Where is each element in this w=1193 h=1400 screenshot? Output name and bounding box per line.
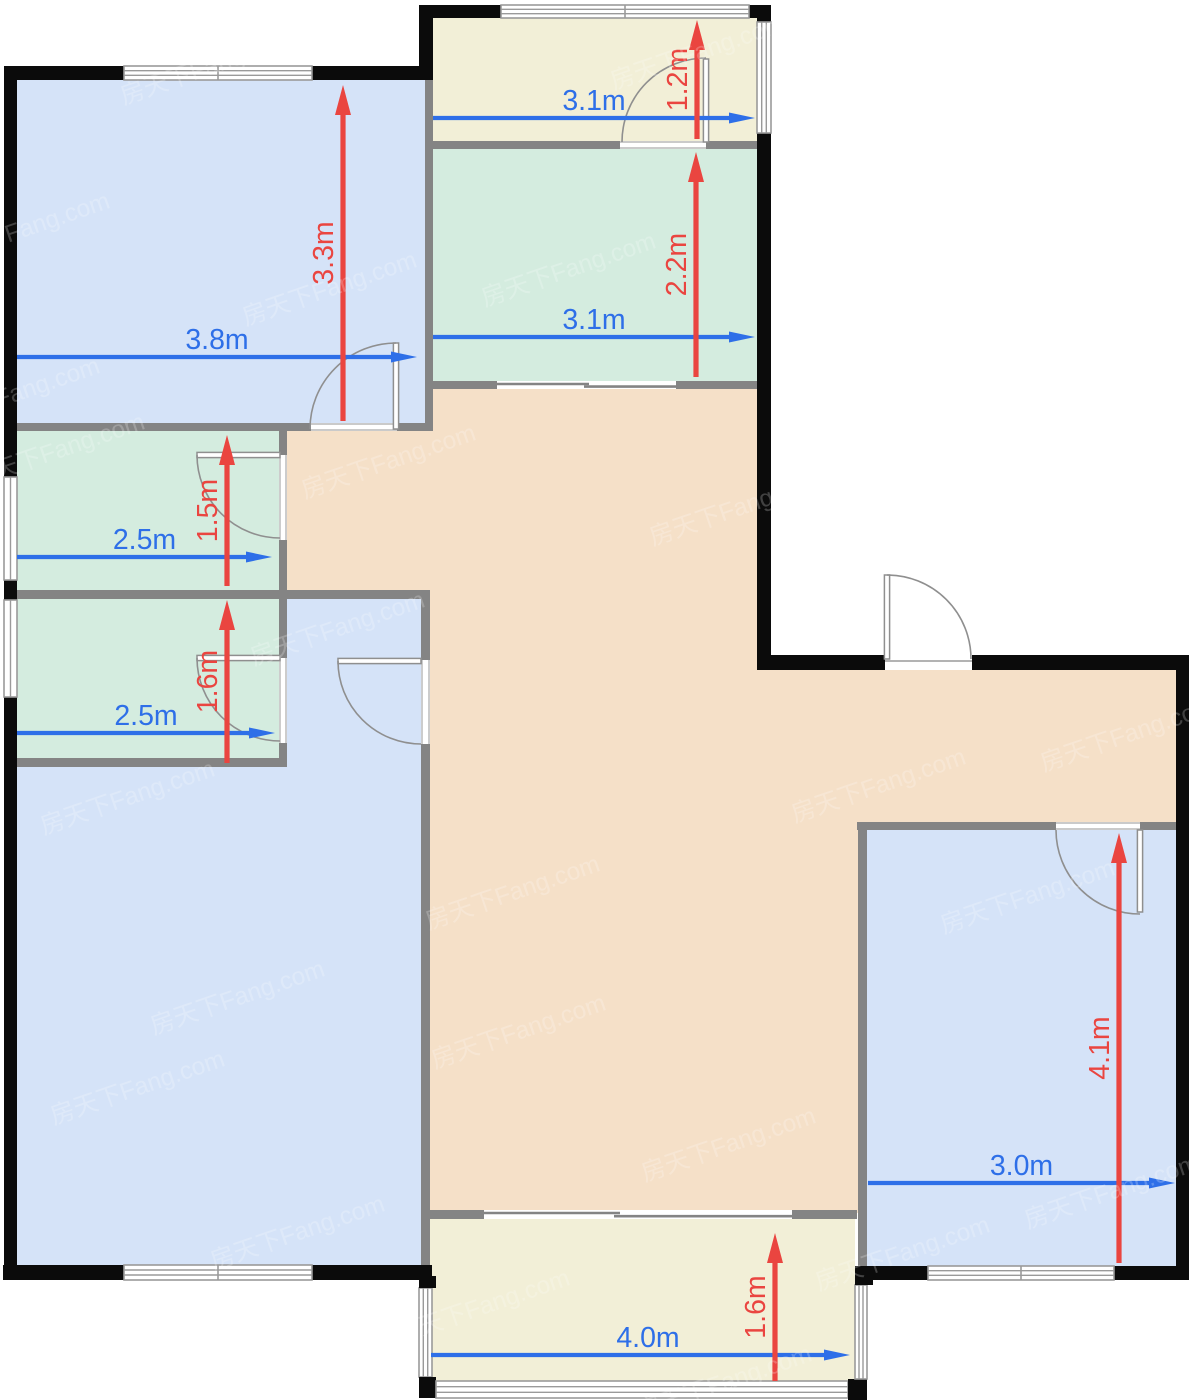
svg-text:1.6m: 1.6m [740, 1275, 772, 1338]
svg-text:2.5m: 2.5m [113, 524, 176, 556]
svg-text:1.6m: 1.6m [192, 650, 224, 713]
svg-text:3.0m: 3.0m [990, 1150, 1053, 1182]
svg-text:4.0m: 4.0m [616, 1322, 679, 1354]
svg-text:3.1m: 3.1m [562, 304, 625, 336]
svg-text:房天下Fang.com: 房天下Fang.com [0, 1335, 118, 1400]
svg-text:2.2m: 2.2m [661, 233, 693, 296]
svg-text:1.5m: 1.5m [192, 479, 224, 542]
svg-text:2.5m: 2.5m [114, 700, 177, 732]
svg-text:3.8m: 3.8m [185, 324, 248, 356]
svg-text:4.1m: 4.1m [1084, 1016, 1116, 1079]
